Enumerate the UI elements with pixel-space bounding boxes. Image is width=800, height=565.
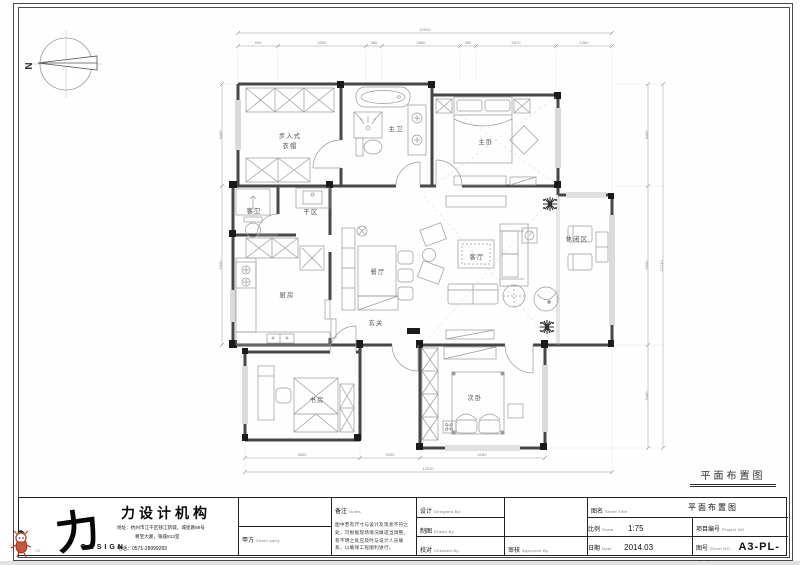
dim-bottom-0: 3830 (298, 452, 308, 457)
desk-icon-study (258, 366, 291, 420)
stove-icon (236, 258, 256, 332)
room-label-second-bedroom: 次卧 (468, 393, 483, 402)
sofa-icon (448, 224, 537, 304)
client-label-en: Client party (256, 538, 280, 543)
shower-icon-master (354, 112, 382, 138)
dim-top-0: 900 (255, 40, 262, 45)
company-address-1: 地址：杭州市江干区钱江新城，城星路89号 (117, 525, 205, 531)
compass-icon: N (24, 30, 102, 98)
shoe-cabinet-icon (358, 296, 398, 310)
sheet-title-value: 平面布置图 (658, 502, 768, 513)
floor-plan-svg: N 12020 900 3250 380 2880 380 (0, 0, 800, 500)
round-table-icon (503, 285, 558, 311)
dim-right-total: 12140 (659, 260, 664, 272)
dim-right-1: 5300 (644, 260, 649, 270)
ceiling-dashed-lines (424, 97, 556, 344)
room-label-master-bath: 主卫 (389, 124, 404, 133)
company-logo-icon: 力 (51, 493, 103, 563)
room-label-study: 书房 (310, 395, 325, 404)
plant-icons (540, 197, 557, 334)
plant-icon-bottom (540, 320, 554, 334)
leisure-chairs-icon (568, 226, 608, 270)
dim-top-total: 12020 (419, 27, 431, 32)
drawing-title-underlined: 平面布置图 (690, 467, 776, 487)
room-label-walkin-2: 衣帽 (283, 141, 298, 150)
drawing-sheet: N 12020 900 3250 380 2880 380 (0, 0, 800, 565)
room-label-leisure: 休闲区 (566, 234, 589, 243)
client-cell: 甲方Client party (238, 498, 331, 555)
dim-top-6: 1360 (580, 40, 590, 45)
room-labels: 步入式 衣帽 主卫 主卧 客卫 干区 厨房 餐厅 客厅 休闲区 玄关 书房 次卧 (247, 124, 589, 404)
client-label: 甲方 (242, 538, 254, 544)
notes-cell: 备注Notes 图中若有尺寸与设计及现状不符之处，可根据现场情况做适当调整，有不… (331, 498, 416, 555)
tatami-bed-icon-study (294, 378, 338, 432)
room-label-foyer: 玄关 (369, 318, 384, 327)
stamp-mascot-icon (8, 527, 42, 559)
checked-label-en: Checked By: (434, 548, 460, 553)
sheet-title-label-en: Sheet Title (605, 509, 627, 514)
tv-bench-icon-master (454, 176, 536, 185)
company-name: 力设计机构 (121, 503, 211, 523)
door-arcs (257, 140, 533, 373)
windows (231, 100, 614, 450)
dim-top-5: 2870 (512, 40, 522, 45)
scale-label-en: Scale (602, 527, 614, 532)
signoff-cell: 设计Designed By: 制图Drawn By: 校对Checked By: (416, 498, 504, 555)
page-edge-shadow (0, 561, 800, 565)
designed-label: 设计 (420, 509, 432, 515)
toilet-icon-master (356, 138, 382, 156)
kitchen-sink-icon (236, 332, 330, 345)
hall-cabinet-icon (246, 238, 324, 270)
date-label-en: Date (602, 546, 612, 551)
dim-top-3: 2880 (417, 40, 427, 45)
room-label-master-bedroom: 主卧 (479, 137, 494, 146)
approved-label: 审核 (508, 548, 520, 554)
scale-label: 比例 (588, 527, 600, 533)
dim-top-2: 380 (371, 40, 378, 45)
sheet-title-label: 图名 (591, 509, 603, 515)
dim-bottom-total: 12230 (422, 466, 434, 471)
drawn-label: 制图 (420, 529, 432, 535)
bathtub-icon (356, 87, 410, 107)
project-no-label-en: Project NO (722, 527, 745, 532)
notes-label: 备注 (335, 509, 347, 515)
dim-top-1: 3250 (318, 40, 328, 45)
room-label-walkin-1: 步入式 (279, 131, 302, 140)
dining-table-icon (358, 246, 413, 300)
dim-right-0: 3400 (644, 130, 649, 140)
client-empty-cell (239, 498, 331, 527)
approve-cell: 审核Approved By: (504, 498, 587, 555)
dining-bench-icon (342, 226, 367, 310)
notes-text: 图中若有尺寸与设计及现状不符之处，可根据现场情况做适当调整，有不明之处应及时与设… (335, 521, 413, 552)
company-phone: 电话：0571-28999293 (117, 545, 167, 552)
dim-bottom-1: 2000 (386, 452, 396, 457)
approved-label-en: Approved By: (522, 548, 550, 553)
compass-north-label: N (24, 62, 35, 69)
bed-icon-bedroom2 (443, 372, 523, 434)
dim-bottom-2: 4160 (478, 452, 488, 457)
project-no-label: 项目编号 (696, 527, 720, 533)
wardrobe-icon-study (340, 384, 354, 432)
plant-icon-top (543, 197, 557, 211)
date-value: 2014.03 (624, 543, 653, 552)
checked-label: 校对 (420, 548, 432, 554)
room-label-dining: 餐厅 (371, 267, 386, 276)
accent-chairs-icon-living (418, 223, 447, 284)
sheet-no-label-en: Sheet NO (710, 546, 730, 551)
title-block: 力 DESIGN 力设计机构 地址：杭州市江干区钱江新城，城星路89号 尊宝大厦… (18, 497, 787, 556)
dim-left-0: 3400 (218, 130, 223, 140)
dim-right-2: 3440 (644, 391, 649, 401)
scale-value: 1:75 (628, 524, 644, 533)
room-label-living: 客厅 (470, 252, 485, 261)
dim-top-4: 380 (465, 40, 472, 45)
dim-left-1: 5300 (218, 260, 223, 270)
company-address-2: 尊宝大厦，银座813室 (135, 534, 179, 540)
drawn-label-en: Drawn By: (434, 529, 455, 534)
bed-icon-master (436, 97, 530, 163)
company-cell: 力 DESIGN 力设计机构 地址：杭州市江干区钱江新城，城星路89号 尊宝大厦… (19, 498, 238, 555)
sink-icon-dry-area (296, 188, 330, 208)
room-label-dry-area: 干区 (304, 208, 319, 216)
sheet-no-label: 图号 (696, 546, 708, 552)
accent-chair-icon-master (510, 126, 538, 154)
sheet-info-cell: 图名Sheet Title 平面布置图 比例Scale 1:75 项目编号Pro… (587, 498, 788, 555)
tv-bench-icon-living (446, 196, 506, 339)
date-label: 日期 (588, 546, 600, 552)
notes-label-en: Notes (349, 509, 361, 514)
designed-label-en: Designed By: (434, 509, 461, 514)
room-label-kitchen: 厨房 (280, 290, 295, 299)
vanity-sink-icon-master (408, 105, 426, 155)
room-label-guest-bath: 客卫 (247, 206, 262, 215)
wardrobe-icon-bedroom2 (422, 347, 496, 440)
